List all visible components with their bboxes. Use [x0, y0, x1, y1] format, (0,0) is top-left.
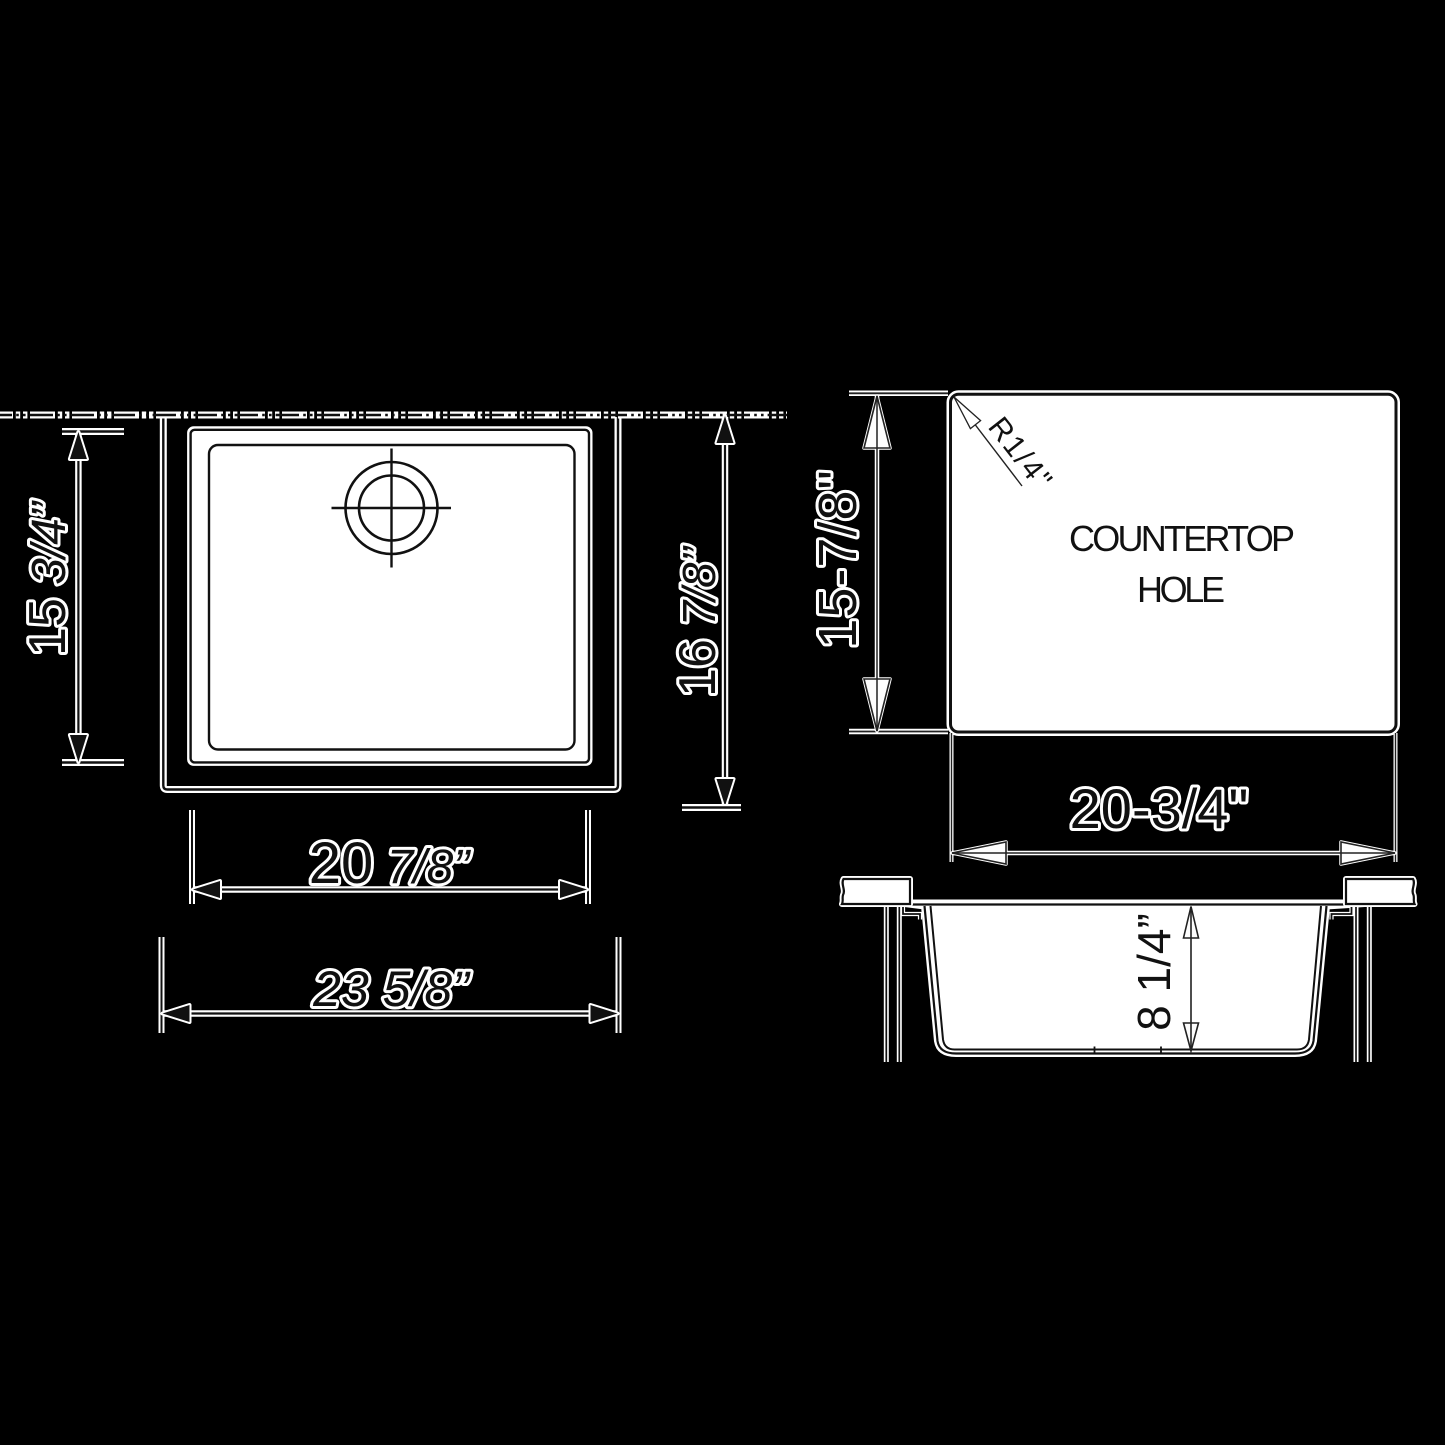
svg-text:20 7/8”: 20 7/8”: [309, 831, 472, 896]
svg-text:16 7/8”: 16 7/8”: [669, 544, 727, 697]
svg-text:23 5/8”: 23 5/8”: [312, 961, 471, 1017]
svg-text:15 3/4”: 15 3/4”: [19, 500, 77, 656]
svg-text:15-7/8": 15-7/8": [808, 469, 868, 648]
svg-text:HOLE: HOLE: [1137, 569, 1225, 610]
svg-text:8 1/4”: 8 1/4”: [1128, 913, 1180, 1031]
svg-text:COUNTERTOP: COUNTERTOP: [1069, 518, 1295, 559]
svg-text:20-3/4": 20-3/4": [1070, 777, 1249, 840]
